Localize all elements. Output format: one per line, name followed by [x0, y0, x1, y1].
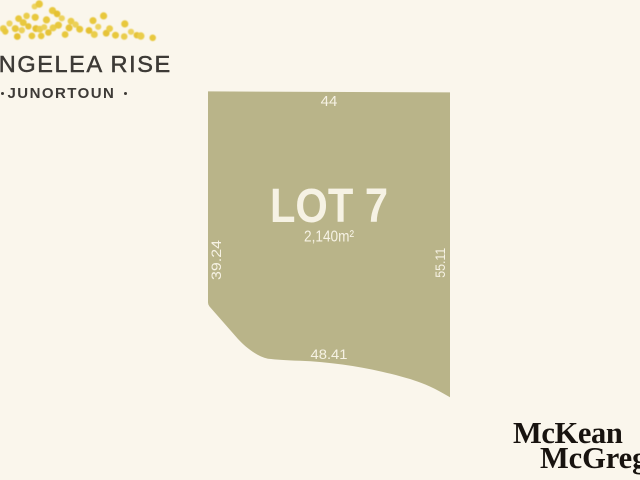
- svg-text:55.11: 55.11: [432, 248, 448, 278]
- svg-text:44: 44: [321, 93, 338, 110]
- svg-text:2,140m²: 2,140m²: [304, 229, 355, 246]
- svg-text:LOT 7: LOT 7: [270, 180, 388, 233]
- svg-text:48.41: 48.41: [311, 346, 348, 362]
- svg-text:39.24: 39.24: [208, 240, 224, 280]
